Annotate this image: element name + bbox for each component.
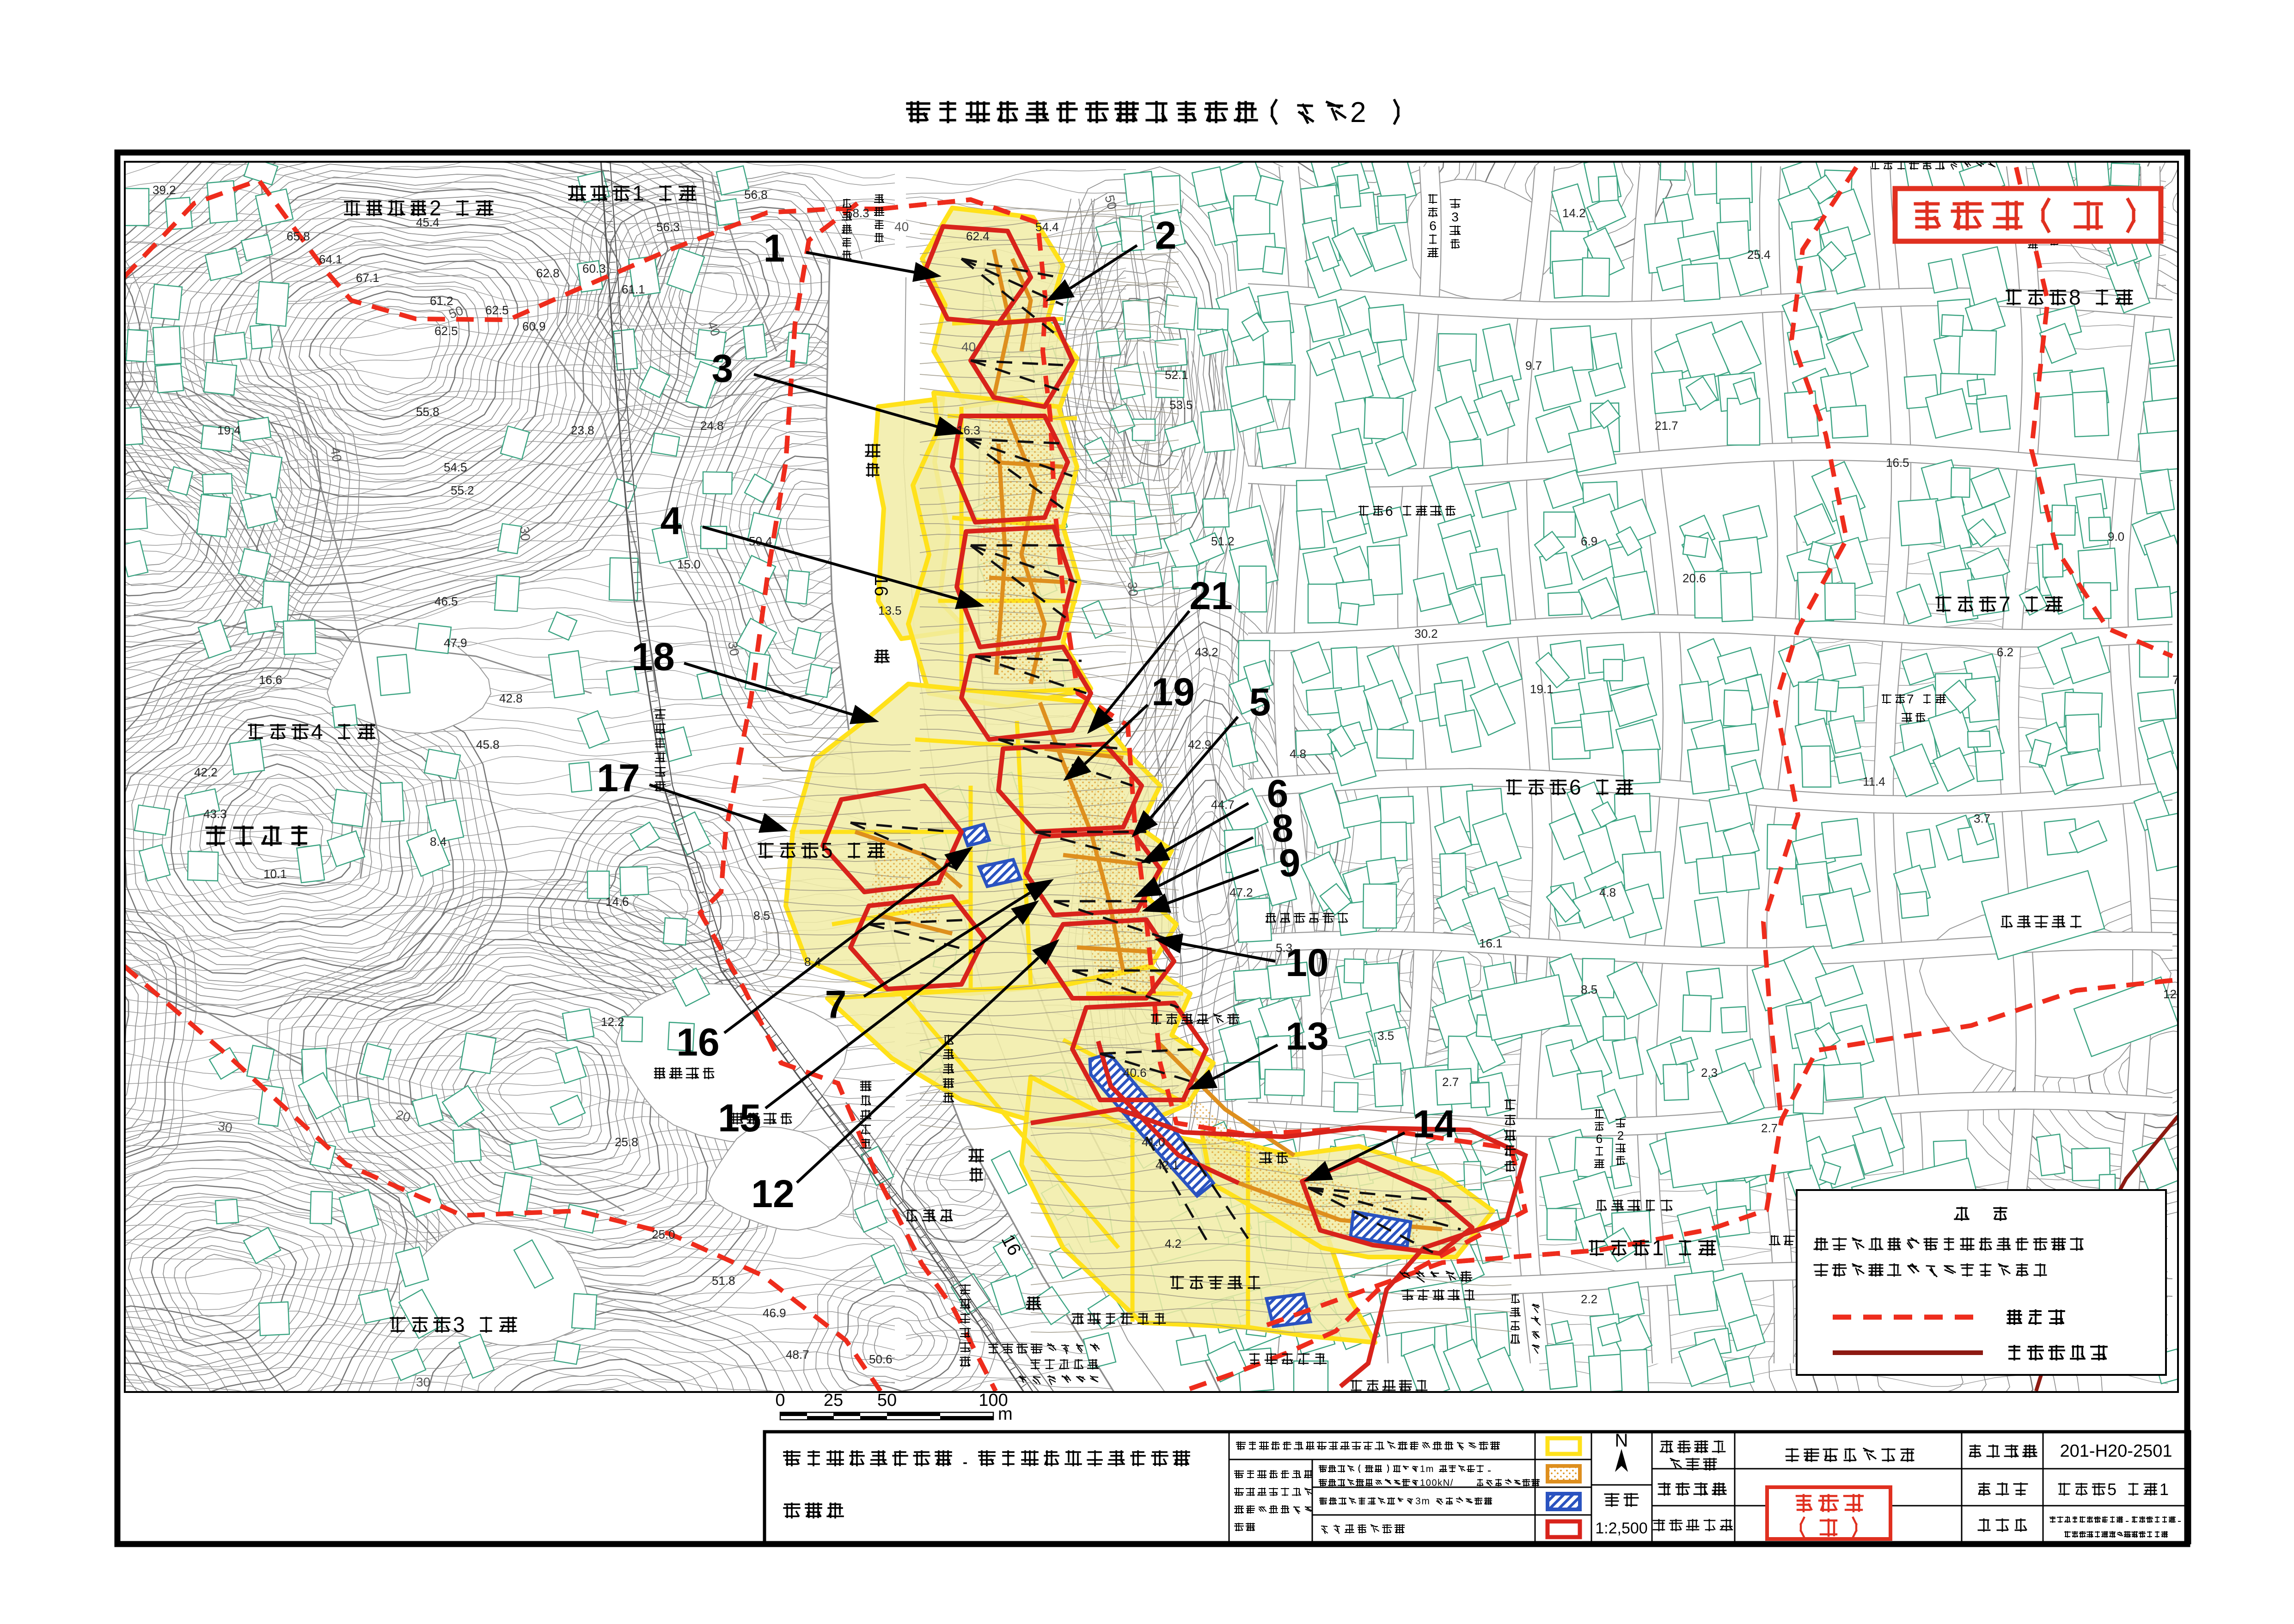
- svg-text:6.9: 6.9: [1581, 534, 1597, 548]
- svg-text:7: 7: [825, 983, 847, 1026]
- svg-text:56.8: 56.8: [744, 188, 768, 201]
- svg-text:18: 18: [631, 635, 674, 678]
- svg-text:54.5: 54.5: [444, 460, 467, 474]
- svg-text:1:2,500: 1:2,500: [1595, 1520, 1647, 1537]
- svg-text:16.1: 16.1: [1479, 936, 1503, 950]
- svg-text:2.7: 2.7: [1761, 1121, 1778, 1135]
- svg-text:3: 3: [453, 1313, 467, 1337]
- svg-text:4: 4: [311, 720, 325, 744]
- svg-text:12.2: 12.2: [601, 1015, 624, 1029]
- svg-text:30: 30: [217, 1118, 233, 1135]
- svg-text:3: 3: [1451, 210, 1459, 224]
- svg-text:2: 2: [1155, 214, 1177, 257]
- svg-text:51.2: 51.2: [1211, 534, 1235, 548]
- svg-text:42.2: 42.2: [194, 765, 218, 779]
- svg-text:17: 17: [597, 756, 640, 800]
- svg-text:51.8: 51.8: [712, 1274, 735, 1288]
- svg-text:21: 21: [1189, 574, 1232, 617]
- svg-text:2.2: 2.2: [1581, 1292, 1597, 1306]
- svg-text:64.1: 64.1: [319, 252, 343, 266]
- svg-text:2.3: 2.3: [1701, 1066, 1718, 1080]
- svg-text:5: 5: [1249, 680, 1271, 724]
- svg-text:61.2: 61.2: [430, 294, 453, 308]
- svg-text:47.2: 47.2: [1230, 885, 1253, 899]
- svg-text:46.9: 46.9: [763, 1306, 786, 1320]
- svg-text:62.5: 62.5: [434, 324, 458, 338]
- svg-text:40: 40: [961, 340, 976, 354]
- svg-text:1: 1: [1652, 1236, 1666, 1260]
- svg-text:9.7: 9.7: [1525, 359, 1542, 372]
- svg-text:2.7: 2.7: [1442, 1075, 1459, 1089]
- svg-text:2: 2: [1617, 1129, 1624, 1142]
- svg-text:8.5: 8.5: [1581, 983, 1597, 996]
- svg-text:56.3: 56.3: [656, 220, 680, 234]
- svg-text:0: 0: [775, 1391, 785, 1410]
- svg-text:4.8: 4.8: [1599, 885, 1616, 899]
- svg-text:2: 2: [1350, 97, 1370, 128]
- svg-text:6: 6: [1596, 1132, 1603, 1146]
- svg-text:42.1: 42.1: [1156, 1158, 1179, 1172]
- svg-text:52.1: 52.1: [1165, 368, 1188, 382]
- svg-text:201-H20-2501: 201-H20-2501: [2060, 1441, 2172, 1461]
- svg-text:42.8: 42.8: [499, 691, 523, 705]
- svg-text:13.5: 13.5: [878, 604, 902, 617]
- svg-text:3m: 3m: [1415, 1496, 1431, 1507]
- svg-text:1: 1: [764, 226, 785, 270]
- svg-text:60.9: 60.9: [522, 319, 546, 333]
- svg-text:16: 16: [676, 1020, 719, 1064]
- svg-text:7: 7: [1907, 692, 1915, 706]
- svg-text:21.7: 21.7: [1655, 419, 1678, 433]
- svg-text:46.5: 46.5: [434, 594, 458, 608]
- svg-text:13: 13: [1285, 1014, 1328, 1058]
- svg-text:14.6: 14.6: [606, 895, 629, 909]
- svg-text:62.4: 62.4: [966, 229, 990, 243]
- svg-text:53.5: 53.5: [1169, 398, 1193, 412]
- svg-text:40: 40: [894, 220, 909, 234]
- svg-text:4: 4: [661, 499, 682, 543]
- svg-text:60.3: 60.3: [582, 262, 606, 275]
- svg-text:30.2: 30.2: [1414, 627, 1438, 641]
- svg-text:16.5: 16.5: [1886, 456, 1909, 470]
- svg-text:5: 5: [2107, 1480, 2118, 1499]
- svg-text:16.3: 16.3: [957, 423, 980, 437]
- svg-text:23.8: 23.8: [571, 423, 594, 437]
- svg-text:8.4: 8.4: [430, 835, 447, 849]
- svg-text:30: 30: [1125, 581, 1141, 597]
- svg-text:42.9: 42.9: [1188, 738, 1211, 751]
- svg-text:50.6: 50.6: [869, 1352, 893, 1366]
- svg-text:19.4: 19.4: [217, 423, 241, 437]
- svg-text:30: 30: [725, 641, 742, 657]
- svg-text:8: 8: [2069, 285, 2083, 309]
- svg-text:100kN/: 100kN/: [1420, 1478, 1454, 1488]
- svg-text:1m: 1m: [1420, 1464, 1434, 1474]
- svg-text:54.4: 54.4: [1035, 220, 1059, 234]
- svg-text:5: 5: [821, 838, 835, 862]
- svg-text:25: 25: [824, 1391, 843, 1410]
- svg-text:9: 9: [1279, 841, 1301, 885]
- svg-text:61.1: 61.1: [622, 282, 645, 296]
- svg-text:10.1: 10.1: [263, 867, 287, 881]
- svg-text:48.7: 48.7: [786, 1348, 809, 1361]
- svg-text:55.2: 55.2: [451, 483, 474, 497]
- svg-text:14: 14: [1413, 1102, 1456, 1146]
- svg-text:6: 6: [1569, 775, 1584, 799]
- svg-text:50: 50: [877, 1391, 897, 1410]
- svg-text:65.8: 65.8: [287, 229, 310, 243]
- svg-text:40.6: 40.6: [1123, 1066, 1147, 1080]
- svg-text:25.8: 25.8: [615, 1135, 638, 1149]
- svg-text:3: 3: [712, 347, 734, 390]
- svg-text:4.8: 4.8: [1290, 747, 1306, 761]
- svg-text:20.6: 20.6: [1682, 571, 1706, 585]
- svg-text:6: 6: [1385, 504, 1395, 519]
- svg-text:43.2: 43.2: [1195, 645, 1218, 659]
- svg-text:25.4: 25.4: [1747, 248, 1771, 262]
- svg-text:9.0: 9.0: [2108, 530, 2124, 543]
- svg-text:62.8: 62.8: [536, 266, 560, 280]
- svg-text:2: 2: [429, 196, 444, 220]
- svg-text:41.0: 41.0: [1142, 1135, 1165, 1149]
- svg-text:55.8: 55.8: [416, 405, 440, 419]
- svg-text:16: 16: [871, 576, 891, 597]
- svg-text:8.5: 8.5: [753, 909, 770, 922]
- svg-text:47.9: 47.9: [444, 636, 467, 650]
- svg-text:3.7: 3.7: [1974, 812, 1990, 825]
- svg-text:40: 40: [328, 446, 344, 463]
- svg-text:3.5: 3.5: [1377, 1029, 1394, 1043]
- svg-text:15: 15: [718, 1096, 761, 1140]
- svg-text:19.1: 19.1: [1530, 682, 1554, 696]
- svg-text:10: 10: [1285, 941, 1328, 984]
- svg-text:30: 30: [517, 526, 533, 542]
- svg-text:1: 1: [632, 181, 647, 205]
- svg-text:15.0: 15.0: [677, 557, 701, 571]
- svg-text:43.3: 43.3: [203, 807, 227, 821]
- svg-text:4.2: 4.2: [1165, 1237, 1181, 1251]
- svg-text:6: 6: [1429, 219, 1437, 233]
- svg-text:1: 1: [2159, 1480, 2171, 1499]
- svg-text:25.0: 25.0: [652, 1227, 675, 1241]
- svg-text:m: m: [998, 1404, 1013, 1424]
- svg-text:67.1: 67.1: [356, 271, 379, 285]
- svg-text:7: 7: [1999, 592, 2013, 616]
- svg-text:11.4: 11.4: [1863, 775, 1885, 788]
- svg-text:39.2: 39.2: [153, 183, 176, 197]
- svg-text:62.5: 62.5: [485, 303, 509, 317]
- svg-text:14.2: 14.2: [1562, 206, 1586, 220]
- svg-text:19: 19: [1151, 670, 1194, 714]
- svg-text:30: 30: [416, 1375, 430, 1389]
- svg-text:24.8: 24.8: [700, 419, 724, 433]
- svg-text:16.6: 16.6: [259, 673, 282, 687]
- svg-text:N: N: [1615, 1430, 1628, 1451]
- svg-text:45.8: 45.8: [476, 738, 500, 751]
- svg-text:44.7: 44.7: [1211, 798, 1235, 812]
- svg-text:12: 12: [751, 1172, 794, 1215]
- svg-text:6.2: 6.2: [1997, 645, 2013, 659]
